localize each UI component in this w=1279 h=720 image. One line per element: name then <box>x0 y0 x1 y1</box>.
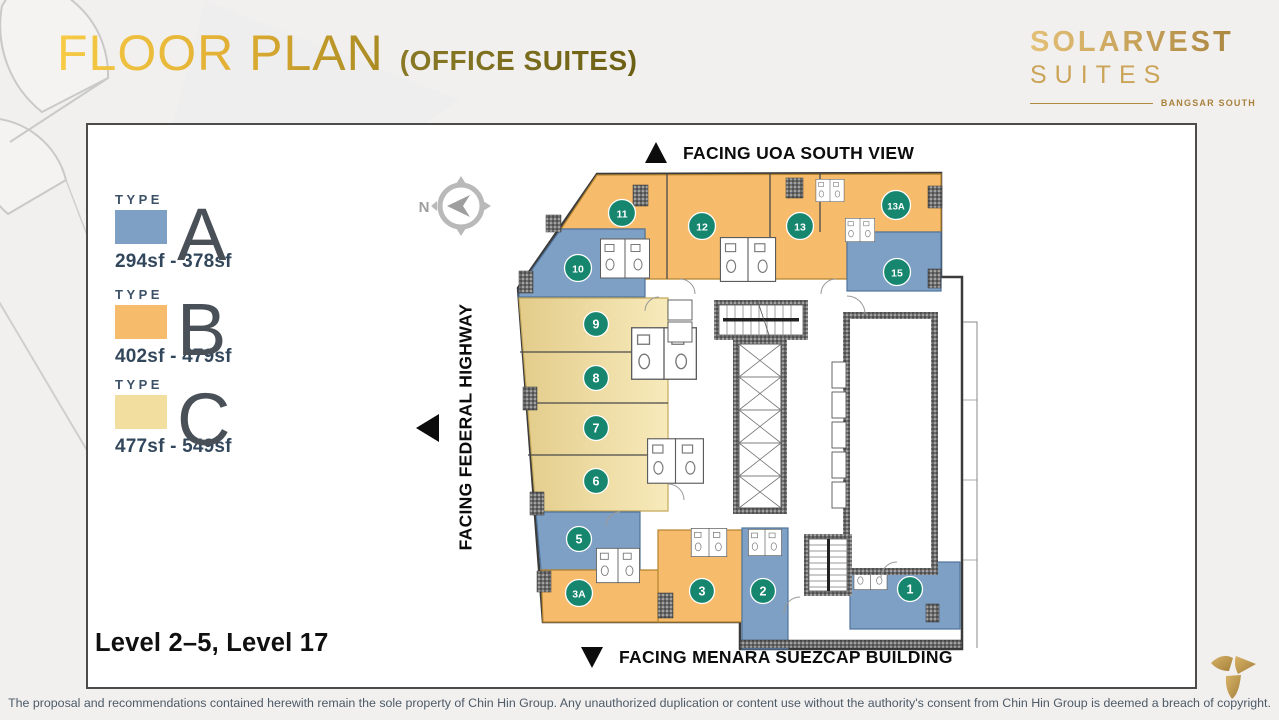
brand-rule <box>1030 103 1153 104</box>
brand-product: SUITES <box>1030 61 1256 90</box>
unit-number-11: 11 <box>616 208 627 220</box>
legend-type-a: TYPE A 294sf - 378sf <box>115 192 305 273</box>
legend-swatch-b <box>115 305 167 339</box>
legend-swatch-c <box>115 395 167 429</box>
page-title: FLOOR PLAN (OFFICE SUITES) <box>57 24 637 82</box>
unit-number-9: 9 <box>593 317 600 331</box>
legend-letter-b: B <box>177 293 226 367</box>
brand-name: SOLARVEST <box>1030 26 1256 59</box>
facing-bottom-text: FACING MENARA SUEZCAP BUILDING <box>619 647 953 668</box>
brand-location: BANGSAR SOUTH <box>1161 98 1256 108</box>
brand-logo: SOLARVEST SUITES BANGSAR SOUTH <box>1030 26 1256 108</box>
unit-number-3a: 3A <box>572 588 586 600</box>
compass-north-label: N <box>419 199 430 216</box>
unit-number-15: 15 <box>891 267 903 279</box>
brand-mark-icon <box>1203 641 1259 703</box>
arrow-down-icon <box>580 645 604 669</box>
legend-letter-c: C <box>177 383 230 457</box>
facing-left-text: FACING FEDERAL HIGHWAY <box>456 304 477 551</box>
legend-letter-a: A <box>177 198 226 272</box>
title-main: FLOOR PLAN <box>57 24 384 82</box>
facing-top-text: FACING UOA SOUTH VIEW <box>683 143 914 164</box>
unit-number-13a: 13A <box>887 201 905 212</box>
unit-number-13: 13 <box>794 221 806 233</box>
disclaimer-text: The proposal and recommendations contain… <box>0 696 1279 710</box>
title-subtitle: (OFFICE SUITES) <box>400 45 638 77</box>
void-room <box>843 312 938 575</box>
unit-number-12: 12 <box>696 221 708 233</box>
unit-number-1: 1 <box>907 582 914 596</box>
level-label: Level 2–5, Level 17 <box>95 629 328 658</box>
unit-number-3: 3 <box>699 584 706 598</box>
compass: N <box>419 176 491 236</box>
elevator-shaft <box>733 338 787 514</box>
staircase-bottom <box>804 534 852 596</box>
facing-top-label: FACING UOA SOUTH VIEW <box>644 141 914 165</box>
right-ledge <box>963 322 977 648</box>
unit-number-5: 5 <box>576 532 583 546</box>
unit-number-10: 10 <box>572 263 584 275</box>
unit-number-6: 6 <box>593 474 600 488</box>
facing-bottom-label: FACING MENARA SUEZCAP BUILDING <box>580 645 953 669</box>
unit-number-8: 8 <box>593 371 600 385</box>
arrow-up-icon <box>644 141 668 165</box>
legend-type-b: TYPE B 402sf - 479sf <box>115 287 305 368</box>
unit-number-2: 2 <box>760 584 767 598</box>
legend-type-c: TYPE C 477sf - 549sf <box>115 377 305 458</box>
staircase-top <box>714 300 808 340</box>
slide: FLOOR PLAN (OFFICE SUITES) SOLARVEST SUI… <box>0 0 1279 720</box>
legend-swatch-a <box>115 210 167 244</box>
unit-number-7: 7 <box>593 421 600 435</box>
arrow-left-icon <box>414 412 440 444</box>
